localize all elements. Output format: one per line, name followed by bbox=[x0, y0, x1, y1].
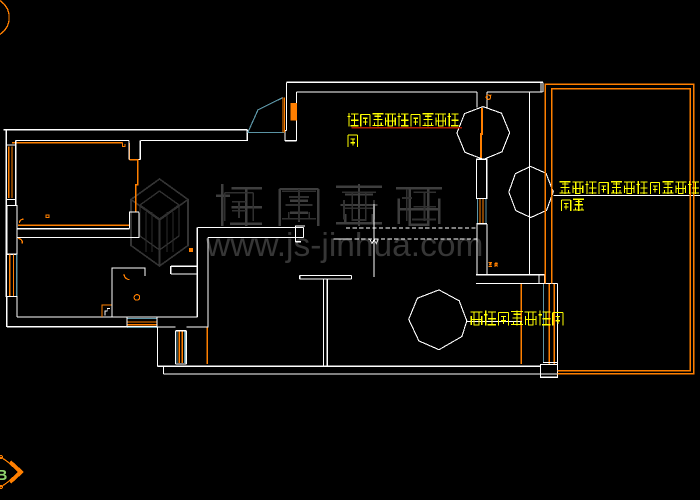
svg-text:www.js-jinhua.com: www.js-jinhua.com bbox=[205, 227, 483, 264]
svg-text:B: B bbox=[0, 467, 8, 484]
